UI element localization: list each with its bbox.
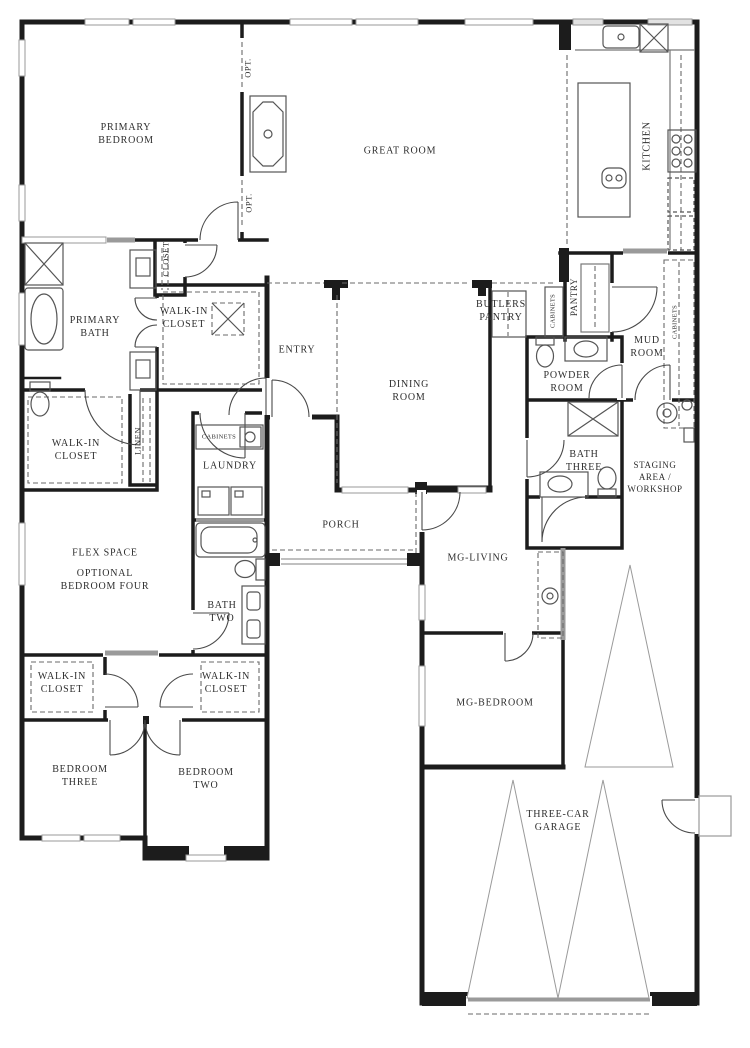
bath2-toilet-icon xyxy=(235,559,265,580)
bath2-tub-icon xyxy=(196,523,265,557)
room-label-opt-1: OPT. xyxy=(242,58,253,78)
powder-toilet-icon xyxy=(536,337,554,367)
cased-openings xyxy=(105,240,667,653)
room-label-opt-2: OPT. xyxy=(243,193,254,213)
primary-vanity-2 xyxy=(130,352,156,390)
room-label-pantry: PANTRY xyxy=(569,278,581,316)
primary-tub-icon xyxy=(25,288,63,350)
door-openings xyxy=(85,38,701,1007)
porch-railing xyxy=(281,559,407,564)
exterior-walls xyxy=(22,22,697,1003)
floor-plan-page: PRIMARY BEDROOM GREAT ROOM KITCHEN OPT. … xyxy=(0,0,750,1048)
room-label-mud-room: MUD ROOM xyxy=(630,334,663,360)
room-label-entry: ENTRY xyxy=(279,343,316,356)
primary-shower-icon xyxy=(25,243,63,285)
closet-island-x xyxy=(212,303,244,335)
room-label-mg-bedroom: MG-BEDROOM xyxy=(456,696,533,709)
utility-panel xyxy=(684,428,694,442)
room-label-bath-two: BATH TWO xyxy=(207,599,236,625)
kitchen-counter-edge xyxy=(575,50,695,250)
room-label-kitchen: KITCHEN xyxy=(640,121,653,170)
room-label-optional-bedroom-four: OPTIONAL BEDROOM FOUR xyxy=(61,567,150,593)
dashed-lines xyxy=(28,42,694,1014)
bedroom-door-post xyxy=(143,716,149,724)
optional-niche-icon xyxy=(250,96,286,172)
room-label-primary-bedroom: PRIMARY BEDROOM xyxy=(98,121,154,147)
room-label-three-car-garage: THREE-CAR GARAGE xyxy=(526,808,589,834)
bath2-vanity-icon xyxy=(242,586,265,644)
room-label-dining-room: DINING ROOM xyxy=(389,378,429,404)
room-label-laundry: LAUNDRY xyxy=(203,459,257,472)
garage-side-landing xyxy=(699,796,731,836)
room-label-cabinets-mud: CABINETS xyxy=(672,305,681,339)
room-label-porch: PORCH xyxy=(322,518,359,531)
room-label-staging-area: STAGING AREA / WORKSHOP xyxy=(627,460,682,496)
room-label-walk-in-closet-left: WALK-IN CLOSET xyxy=(38,670,86,696)
room-label-flex-space: FLEX SPACE xyxy=(72,546,138,559)
room-label-bedroom-two: BEDROOM TWO xyxy=(178,766,234,792)
primary-toilet-icon xyxy=(30,382,50,416)
primary-vanity-1 xyxy=(130,250,156,288)
room-label-linen: LINEN xyxy=(132,427,143,455)
garage-symbols xyxy=(467,565,673,1000)
car-clearance-triangle-1 xyxy=(585,565,673,767)
kitchen-sink-icon xyxy=(603,26,639,48)
room-label-bedroom-three: BEDROOM THREE xyxy=(52,763,108,789)
room-label-bath-three: BATH THREE xyxy=(566,448,602,474)
room-label-powder-room: POWDER ROOM xyxy=(543,369,590,395)
room-label-primary-bath: PRIMARY BATH xyxy=(70,314,121,340)
interior-walls xyxy=(22,22,697,858)
laundry-sink-icon xyxy=(240,427,261,447)
bath3-shower-icon xyxy=(568,402,618,436)
room-label-great-room: GREAT ROOM xyxy=(364,144,437,157)
powder-vanity-icon xyxy=(565,337,607,361)
washer-dryer-icon xyxy=(198,487,262,515)
room-label-walk-in-closet-right: WALK-IN CLOSET xyxy=(202,670,250,696)
kitchen-island xyxy=(578,83,630,217)
room-label-walk-in-closet-primary: WALK-IN CLOSET xyxy=(160,305,208,331)
kitchen-corner-cabinet xyxy=(640,24,668,52)
room-label-walk-in-closet-hall: WALK-IN CLOSET xyxy=(52,437,100,463)
kitchenette-sink-icon xyxy=(542,588,558,604)
primary-vanity-2-sink xyxy=(136,360,150,378)
range-icon xyxy=(668,130,696,172)
room-label-closet: CLOSET xyxy=(160,241,171,276)
room-label-butlers-pantry: BUTLERS PANTRY xyxy=(476,298,526,324)
room-label-cabinets-butlers: CABINETS xyxy=(550,294,559,328)
room-label-cabinets-laundry: CABINETS xyxy=(202,434,236,443)
primary-vanity-1-sink xyxy=(136,258,150,276)
room-label-mg-living: MG-LIVING xyxy=(447,551,508,564)
